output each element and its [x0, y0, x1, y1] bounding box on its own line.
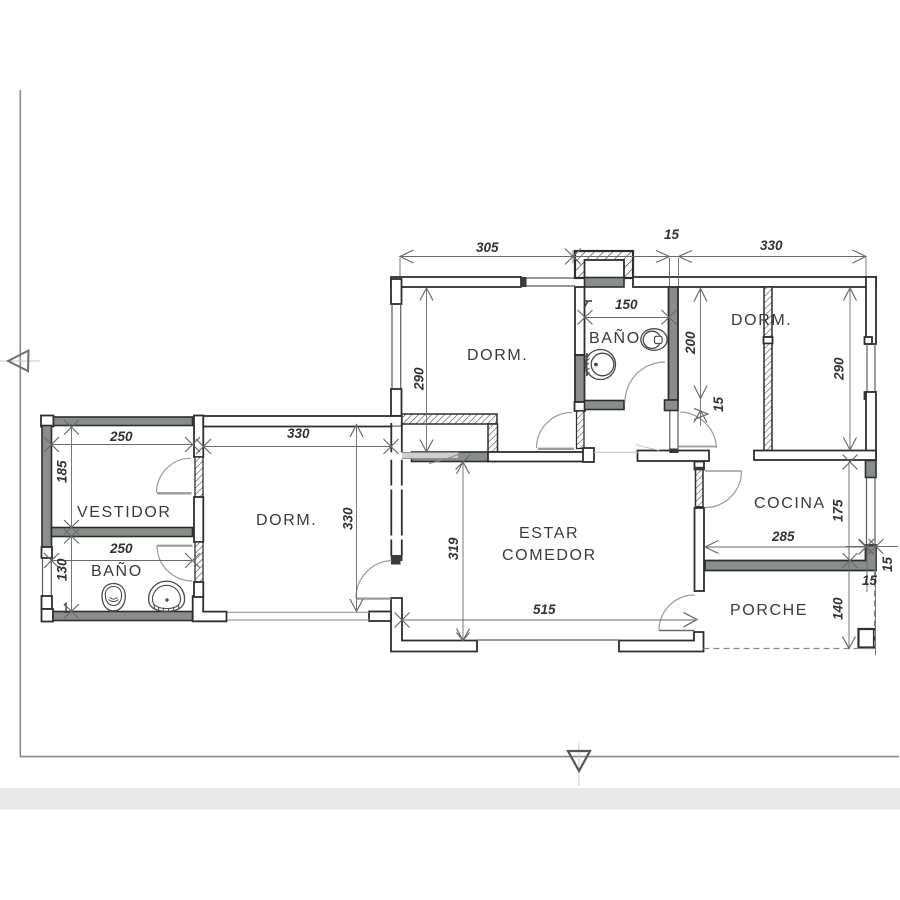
svg-text:200: 200: [683, 331, 698, 355]
svg-text:BAÑO: BAÑO: [91, 560, 143, 580]
svg-text:185: 185: [55, 460, 70, 483]
svg-text:330: 330: [287, 426, 310, 441]
svg-text:175: 175: [831, 499, 846, 522]
svg-text:515: 515: [533, 602, 556, 617]
svg-text:330: 330: [341, 507, 356, 530]
svg-text:285: 285: [771, 529, 795, 544]
svg-text:DORM.: DORM.: [467, 347, 528, 364]
svg-text:VESTIDOR: VESTIDOR: [77, 504, 172, 521]
svg-text:250: 250: [109, 541, 133, 556]
svg-text:290: 290: [412, 367, 427, 391]
svg-text:140: 140: [831, 597, 846, 620]
svg-text:DORM.: DORM.: [731, 312, 792, 329]
svg-text:130: 130: [55, 558, 70, 581]
svg-text:15: 15: [711, 396, 726, 412]
svg-text:319: 319: [446, 537, 461, 560]
svg-text:150: 150: [615, 297, 638, 312]
svg-text:290: 290: [832, 357, 847, 381]
svg-text:330: 330: [760, 238, 783, 253]
svg-text:250: 250: [109, 429, 133, 444]
svg-text:15: 15: [862, 573, 878, 588]
svg-text:BAÑO: BAÑO: [589, 327, 641, 347]
svg-text:PORCHE: PORCHE: [730, 602, 808, 619]
svg-text:DORM.: DORM.: [256, 512, 317, 529]
svg-text:305: 305: [476, 240, 499, 255]
svg-text:15: 15: [880, 556, 895, 572]
svg-text:15: 15: [664, 227, 680, 242]
svg-text:COCINA: COCINA: [754, 495, 826, 512]
svg-text:ESTAR: ESTAR: [519, 525, 579, 542]
svg-text:COMEDOR: COMEDOR: [502, 547, 597, 564]
